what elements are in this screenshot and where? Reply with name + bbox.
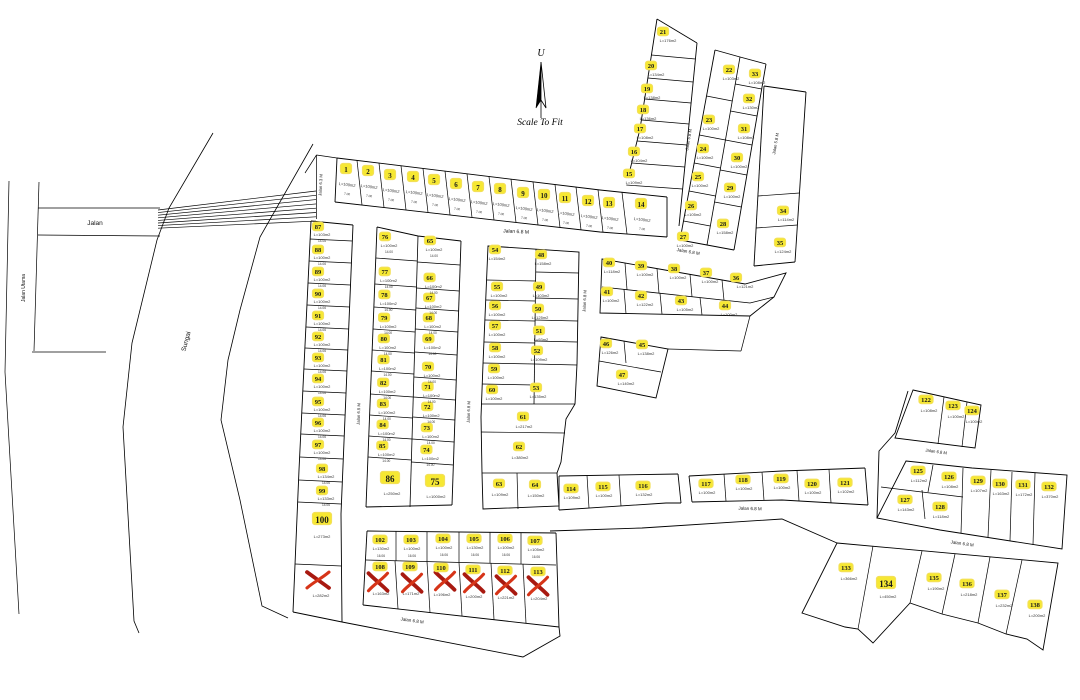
svg-text:14.00: 14.00	[429, 311, 437, 315]
svg-text:L=105m2: L=105m2	[685, 212, 703, 217]
svg-text:14.00: 14.00	[384, 373, 392, 377]
svg-text:74: 74	[423, 447, 430, 454]
svg-text:L=150m2: L=150m2	[528, 493, 546, 498]
svg-text:15: 15	[626, 171, 633, 178]
svg-text:7.00: 7.00	[411, 200, 418, 205]
svg-text:7.00: 7.00	[521, 216, 528, 221]
svg-text:L=130m2: L=130m2	[373, 546, 391, 551]
svg-text:L=100m2: L=100m2	[380, 301, 398, 306]
svg-text:24: 24	[700, 146, 707, 153]
svg-text:73: 73	[424, 425, 431, 432]
svg-text:100: 100	[315, 515, 329, 525]
svg-text:L=108m2: L=108m2	[942, 484, 960, 489]
svg-text:91: 91	[315, 313, 322, 320]
svg-text:L=100m2: L=100m2	[314, 428, 332, 433]
svg-text:16.06: 16.06	[532, 555, 540, 559]
svg-text:L=109m2: L=109m2	[492, 492, 510, 497]
svg-text:51: 51	[536, 328, 543, 335]
svg-text:L=103m2: L=103m2	[723, 76, 741, 81]
svg-text:39: 39	[638, 263, 645, 270]
svg-text:40: 40	[606, 260, 613, 267]
svg-text:14.06: 14.06	[318, 414, 326, 418]
svg-text:L=100m2: L=100m2	[677, 243, 695, 248]
svg-text:57: 57	[492, 323, 499, 330]
svg-text:L=100m2: L=100m2	[379, 366, 397, 371]
svg-text:L=100m2: L=100m2	[424, 324, 442, 329]
svg-text:93: 93	[315, 355, 322, 362]
svg-text:132: 132	[1044, 484, 1054, 491]
svg-text:14.00: 14.00	[384, 352, 392, 356]
svg-text:14.00: 14.00	[428, 400, 436, 404]
svg-text:123: 123	[948, 403, 959, 410]
svg-text:L=100m2: L=100m2	[948, 414, 966, 419]
svg-text:14.06: 14.06	[318, 391, 326, 395]
svg-text:135: 135	[929, 575, 940, 582]
svg-text:L=196m2: L=196m2	[434, 592, 452, 597]
svg-text:77: 77	[381, 269, 388, 276]
svg-text:36: 36	[733, 275, 740, 282]
svg-text:14.00: 14.00	[385, 285, 393, 289]
svg-text:L=100m2: L=100m2	[314, 384, 332, 389]
svg-text:14.00: 14.00	[385, 250, 393, 254]
svg-text:L=250m2: L=250m2	[384, 491, 402, 496]
svg-text:16.06: 16.06	[471, 553, 479, 557]
svg-text:L=118m2: L=118m2	[604, 269, 621, 274]
svg-text:Jalan 6.8 M: Jalan 6.8 M	[738, 506, 762, 512]
svg-text:6: 6	[454, 181, 458, 189]
svg-text:66: 66	[426, 275, 433, 282]
svg-text:14.00: 14.00	[384, 308, 392, 312]
svg-text:L=130m2: L=130m2	[467, 545, 485, 550]
svg-text:7.00: 7.00	[476, 210, 483, 215]
svg-text:86: 86	[386, 474, 396, 484]
svg-text:130: 130	[995, 481, 1005, 488]
svg-text:41: 41	[604, 289, 611, 296]
svg-text:L=138m2: L=138m2	[638, 351, 656, 356]
svg-text:L=105m2: L=105m2	[677, 307, 695, 312]
svg-text:L=100m2: L=100m2	[381, 243, 399, 248]
svg-text:32: 32	[746, 96, 753, 103]
svg-text:4: 4	[411, 174, 415, 182]
svg-text:L=100m2: L=100m2	[637, 272, 655, 277]
svg-text:L=130m2: L=130m2	[743, 105, 761, 110]
svg-text:13: 13	[606, 200, 614, 208]
svg-text:14.00: 14.00	[430, 254, 438, 258]
svg-text:102: 102	[375, 537, 385, 544]
svg-text:L=273m2: L=273m2	[314, 534, 332, 539]
svg-text:L=100m2: L=100m2	[692, 183, 710, 188]
svg-text:L=100m2: L=100m2	[424, 373, 442, 378]
svg-text:58: 58	[492, 345, 499, 352]
svg-text:115: 115	[598, 484, 608, 491]
svg-text:96: 96	[315, 420, 322, 427]
svg-text:14.06: 14.06	[318, 349, 326, 353]
svg-text:L=200m2: L=200m2	[1029, 613, 1047, 618]
svg-text:11: 11	[562, 195, 569, 203]
svg-text:110: 110	[436, 565, 445, 572]
svg-text:L=100m2: L=100m2	[422, 434, 440, 439]
svg-text:L=114m2: L=114m2	[778, 217, 795, 222]
svg-text:16: 16	[631, 149, 638, 156]
svg-text:14.00: 14.00	[384, 331, 392, 335]
svg-text:14.00: 14.00	[383, 396, 391, 400]
svg-text:85: 85	[379, 443, 386, 450]
svg-text:L=232m2: L=232m2	[996, 603, 1014, 608]
svg-text:L=103m2: L=103m2	[314, 232, 332, 237]
svg-text:L=104m2: L=104m2	[631, 158, 649, 163]
svg-text:L=221m2: L=221m2	[498, 595, 516, 600]
svg-text:48: 48	[538, 252, 545, 259]
svg-text:L=100m2: L=100m2	[314, 299, 332, 304]
svg-text:21: 21	[660, 29, 667, 36]
svg-text:23: 23	[706, 117, 713, 124]
svg-text:L=100m2: L=100m2	[489, 332, 507, 337]
svg-text:7.00: 7.00	[388, 198, 395, 203]
svg-text:5: 5	[432, 177, 436, 185]
svg-text:7.00: 7.00	[498, 212, 505, 217]
svg-text:L=100m2: L=100m2	[603, 298, 621, 303]
svg-text:L=112m2: L=112m2	[911, 478, 928, 483]
svg-text:34: 34	[780, 208, 787, 215]
svg-text:60: 60	[489, 387, 496, 394]
svg-text:7.00: 7.00	[586, 224, 593, 229]
svg-text:L=172m2: L=172m2	[1016, 492, 1034, 497]
svg-text:14.06: 14.06	[318, 328, 326, 332]
svg-text:44: 44	[722, 303, 729, 310]
svg-text:61: 61	[520, 414, 527, 421]
svg-text:L=100m2: L=100m2	[314, 342, 332, 347]
svg-text:L=100m2: L=100m2	[736, 486, 754, 491]
svg-text:78: 78	[381, 292, 388, 299]
svg-text:7.00: 7.00	[542, 218, 549, 223]
svg-text:L=154m2: L=154m2	[489, 256, 507, 261]
svg-text:14.00: 14.00	[427, 441, 435, 445]
svg-text:L=100m2: L=100m2	[314, 407, 332, 412]
svg-text:L=100m2: L=100m2	[731, 164, 749, 169]
svg-text:113: 113	[533, 569, 543, 576]
svg-text:L=122m2: L=122m2	[637, 302, 655, 307]
svg-text:127: 127	[900, 497, 911, 504]
svg-text:1: 1	[344, 166, 348, 174]
svg-text:14.00: 14.00	[383, 417, 391, 421]
svg-text:103: 103	[406, 537, 417, 544]
svg-text:7: 7	[476, 184, 480, 192]
svg-text:7.00: 7.00	[432, 203, 439, 208]
svg-text:54: 54	[492, 247, 499, 254]
svg-text:131: 131	[1018, 482, 1028, 489]
svg-text:L=105m2: L=105m2	[528, 547, 546, 552]
svg-text:L=366m2: L=366m2	[841, 576, 859, 581]
svg-text:L=100m2: L=100m2	[314, 450, 332, 455]
svg-text:L=100m2: L=100m2	[697, 155, 715, 160]
svg-text:L=100m2: L=100m2	[425, 284, 443, 289]
svg-text:106: 106	[500, 536, 511, 543]
svg-text:16.06: 16.06	[377, 554, 385, 558]
svg-text:L=100m2: L=100m2	[424, 345, 442, 350]
svg-text:Jalan: Jalan	[87, 220, 103, 227]
svg-text:80: 80	[381, 336, 388, 343]
svg-text:107: 107	[530, 538, 541, 545]
svg-text:L=100m2: L=100m2	[489, 354, 507, 359]
svg-text:67: 67	[426, 295, 433, 302]
svg-text:7.00: 7.00	[366, 194, 373, 199]
svg-text:L=204m2: L=204m2	[531, 596, 549, 601]
svg-text:10: 10	[541, 192, 549, 200]
svg-text:114: 114	[566, 486, 576, 493]
svg-text:L=100m2: L=100m2	[314, 255, 332, 260]
svg-text:119: 119	[776, 476, 786, 483]
svg-text:14.06: 14.06	[322, 481, 330, 485]
svg-text:14.06: 14.06	[318, 435, 326, 439]
svg-text:14.06: 14.06	[318, 370, 326, 374]
svg-text:14.06: 14.06	[318, 284, 326, 288]
svg-text:L=100m2: L=100m2	[966, 419, 984, 424]
svg-text:L=100m2: L=100m2	[404, 546, 422, 551]
svg-text:L=93m2: L=93m2	[534, 337, 549, 342]
svg-text:126: 126	[944, 474, 955, 481]
svg-text:14.00: 14.00	[429, 331, 437, 335]
svg-text:69: 69	[425, 336, 432, 343]
svg-text:L=100m2: L=100m2	[314, 363, 332, 368]
svg-text:12: 12	[585, 198, 593, 206]
svg-text:79: 79	[381, 315, 388, 322]
svg-text:L=126m2: L=126m2	[602, 350, 620, 355]
svg-text:14.00: 14.00	[383, 438, 391, 442]
svg-text:L=100m2: L=100m2	[703, 126, 721, 131]
svg-text:64: 64	[532, 482, 539, 489]
svg-text:87: 87	[315, 224, 322, 231]
svg-text:82: 82	[380, 380, 387, 387]
svg-text:L=100m2: L=100m2	[423, 413, 441, 418]
svg-text:L=100m2: L=100m2	[379, 345, 397, 350]
svg-text:L=109m2: L=109m2	[626, 180, 644, 185]
svg-text:72: 72	[424, 404, 431, 411]
svg-text:L=100m2: L=100m2	[724, 194, 742, 199]
svg-text:111: 111	[468, 567, 477, 574]
svg-text:70: 70	[425, 364, 432, 371]
svg-text:L=217m2: L=217m2	[516, 424, 534, 429]
svg-text:116: 116	[638, 483, 648, 490]
svg-text:76: 76	[382, 234, 389, 241]
svg-text:L=107m2: L=107m2	[971, 488, 989, 493]
svg-text:L=134m2: L=134m2	[648, 72, 666, 77]
svg-text:L=100m2: L=100m2	[380, 278, 398, 283]
svg-text:14.06: 14.06	[322, 503, 330, 507]
svg-text:29: 29	[727, 185, 734, 192]
svg-text:7.00: 7.00	[607, 226, 614, 231]
svg-text:L=100m2: L=100m2	[491, 293, 509, 298]
svg-text:L=163m2: L=163m2	[373, 591, 391, 596]
svg-text:L=100m2: L=100m2	[702, 279, 720, 284]
svg-text:7.00: 7.00	[563, 221, 570, 226]
svg-text:17: 17	[637, 126, 644, 133]
svg-text:63: 63	[496, 481, 503, 488]
svg-text:14.06: 14.06	[318, 239, 326, 243]
svg-text:136: 136	[962, 581, 973, 588]
svg-text:14.00: 14.00	[430, 291, 438, 295]
svg-text:L=100m2: L=100m2	[805, 490, 823, 495]
svg-text:89: 89	[315, 269, 322, 276]
svg-text:109: 109	[405, 564, 416, 571]
svg-text:14.00: 14.00	[427, 420, 435, 424]
svg-text:129: 129	[973, 478, 984, 485]
svg-text:42: 42	[638, 293, 645, 300]
svg-text:50: 50	[535, 306, 542, 313]
svg-text:L=118m2: L=118m2	[933, 514, 950, 519]
svg-text:22: 22	[726, 67, 733, 74]
svg-text:L=100m2: L=100m2	[498, 545, 516, 550]
svg-text:9: 9	[521, 190, 525, 198]
svg-text:46: 46	[603, 341, 610, 348]
svg-text:L=100m2: L=100m2	[699, 490, 717, 495]
svg-text:52: 52	[534, 348, 541, 355]
svg-text:L=100m2: L=100m2	[422, 456, 440, 461]
svg-text:L=108m2: L=108m2	[637, 135, 655, 140]
svg-text:L=100m2: L=100m2	[378, 431, 396, 436]
svg-text:120: 120	[807, 481, 817, 488]
svg-text:75: 75	[431, 477, 441, 487]
svg-text:14.00: 14.00	[426, 463, 434, 467]
svg-text:105: 105	[469, 536, 480, 543]
svg-text:L=143m2: L=143m2	[898, 507, 916, 512]
svg-text:L=190m2: L=190m2	[928, 586, 946, 591]
svg-text:124: 124	[967, 408, 978, 415]
svg-text:90: 90	[315, 291, 322, 298]
svg-text:53: 53	[533, 385, 540, 392]
svg-text:16.06: 16.06	[502, 553, 510, 557]
svg-text:117: 117	[701, 481, 711, 488]
svg-text:35: 35	[777, 240, 784, 247]
svg-text:128: 128	[935, 504, 946, 511]
svg-text:118: 118	[738, 477, 748, 484]
svg-text:L=370m2: L=370m2	[1042, 494, 1060, 499]
svg-text:134: 134	[879, 579, 893, 589]
svg-text:Jalan 6.5 M: Jalan 6.5 M	[356, 403, 362, 425]
svg-text:14.00: 14.00	[428, 380, 436, 384]
svg-text:2: 2	[366, 168, 370, 176]
svg-text:L=136m2: L=136m2	[640, 116, 658, 121]
svg-text:47: 47	[619, 372, 626, 379]
svg-text:8: 8	[498, 186, 502, 194]
svg-text:L=158m2: L=158m2	[535, 261, 553, 266]
svg-text:L=140m2: L=140m2	[618, 381, 636, 386]
svg-text:L=450m2: L=450m2	[880, 594, 898, 599]
svg-text:L=109m2: L=109m2	[531, 357, 549, 362]
svg-text:L=100m2: L=100m2	[314, 321, 332, 326]
svg-text:62: 62	[516, 444, 523, 451]
svg-text:L=158m2: L=158m2	[717, 230, 735, 235]
svg-text:U: U	[537, 48, 545, 59]
svg-text:L=100m2: L=100m2	[378, 452, 396, 457]
svg-text:L=108m2: L=108m2	[738, 135, 756, 140]
svg-text:L=100m2: L=100m2	[379, 389, 397, 394]
svg-text:14.00: 14.00	[428, 352, 436, 356]
svg-text:81: 81	[380, 357, 387, 364]
svg-text:L=100m2: L=100m2	[436, 545, 454, 550]
svg-text:68: 68	[426, 315, 433, 322]
svg-text:121: 121	[840, 480, 850, 487]
svg-text:92: 92	[315, 334, 322, 341]
svg-text:7.00: 7.00	[344, 192, 351, 197]
svg-text:L=138m2: L=138m2	[644, 95, 662, 100]
svg-text:Scale To Fit: Scale To Fit	[517, 118, 563, 128]
svg-text:L=125m2: L=125m2	[532, 315, 550, 320]
svg-text:122: 122	[921, 397, 931, 404]
svg-text:L=132m2: L=132m2	[636, 492, 654, 497]
svg-text:L=100m2: L=100m2	[489, 312, 507, 317]
svg-text:98: 98	[319, 466, 326, 473]
svg-text:L=100m2: L=100m2	[380, 324, 398, 329]
svg-text:84: 84	[379, 422, 386, 429]
svg-text:104: 104	[438, 536, 449, 543]
svg-text:16.06: 16.06	[408, 554, 416, 558]
svg-text:38: 38	[671, 266, 678, 273]
svg-text:L=108m2: L=108m2	[749, 80, 767, 85]
svg-text:L=108m2: L=108m2	[921, 408, 939, 413]
svg-text:L=100m2: L=100m2	[486, 396, 504, 401]
svg-text:99: 99	[319, 488, 326, 495]
svg-text:30: 30	[734, 155, 741, 162]
svg-text:33: 33	[752, 71, 759, 78]
svg-text:L=100m2: L=100m2	[721, 312, 739, 317]
svg-text:14: 14	[638, 201, 646, 209]
svg-text:L=218m2: L=218m2	[961, 592, 979, 597]
svg-text:L=103m2: L=103m2	[533, 293, 551, 298]
svg-text:94: 94	[315, 376, 322, 383]
svg-text:125: 125	[913, 468, 924, 475]
svg-text:L=1000m2: L=1000m2	[426, 494, 446, 499]
svg-text:138: 138	[1030, 602, 1041, 609]
svg-text:45: 45	[639, 342, 646, 349]
svg-text:16.06: 16.06	[440, 553, 448, 557]
svg-text:L=176m2: L=176m2	[660, 38, 678, 43]
svg-text:133: 133	[841, 565, 852, 572]
svg-text:14.06: 14.06	[318, 306, 326, 310]
svg-text:L=124m2: L=124m2	[775, 249, 793, 254]
svg-text:71: 71	[424, 384, 431, 391]
svg-text:L=100m2: L=100m2	[314, 277, 332, 282]
svg-text:L=102m2: L=102m2	[838, 489, 856, 494]
svg-text:L=109m2: L=109m2	[564, 495, 582, 500]
svg-text:56: 56	[492, 303, 499, 310]
svg-text:L=134m2: L=134m2	[318, 474, 336, 479]
svg-text:43: 43	[678, 298, 685, 305]
svg-text:83: 83	[380, 401, 387, 408]
svg-text:97: 97	[315, 442, 322, 449]
svg-text:27: 27	[680, 234, 687, 241]
svg-text:L=171m2: L=171m2	[403, 591, 421, 596]
svg-text:14.06: 14.06	[318, 262, 326, 266]
svg-text:L=100m2: L=100m2	[670, 275, 688, 280]
svg-text:L=100m2: L=100m2	[379, 410, 397, 415]
svg-text:7.00: 7.00	[454, 207, 461, 212]
svg-text:19: 19	[644, 86, 651, 93]
svg-text:L=100m2: L=100m2	[488, 375, 506, 380]
svg-text:Jalan 6.8 M: Jalan 6.8 M	[466, 401, 472, 423]
svg-text:31: 31	[741, 126, 748, 133]
svg-text:L=100m2: L=100m2	[596, 493, 614, 498]
svg-text:L=100m2: L=100m2	[425, 304, 443, 309]
svg-text:L=121m2: L=121m2	[737, 284, 755, 289]
svg-text:L=100m2: L=100m2	[426, 247, 444, 252]
svg-text:59: 59	[491, 366, 498, 373]
svg-text:49: 49	[536, 284, 543, 291]
svg-text:L=380m2: L=380m2	[512, 455, 530, 460]
svg-text:3: 3	[388, 172, 392, 180]
svg-text:Jalan Utama: Jalan Utama	[21, 274, 27, 302]
svg-text:88: 88	[315, 247, 322, 254]
svg-text:20: 20	[648, 63, 655, 70]
